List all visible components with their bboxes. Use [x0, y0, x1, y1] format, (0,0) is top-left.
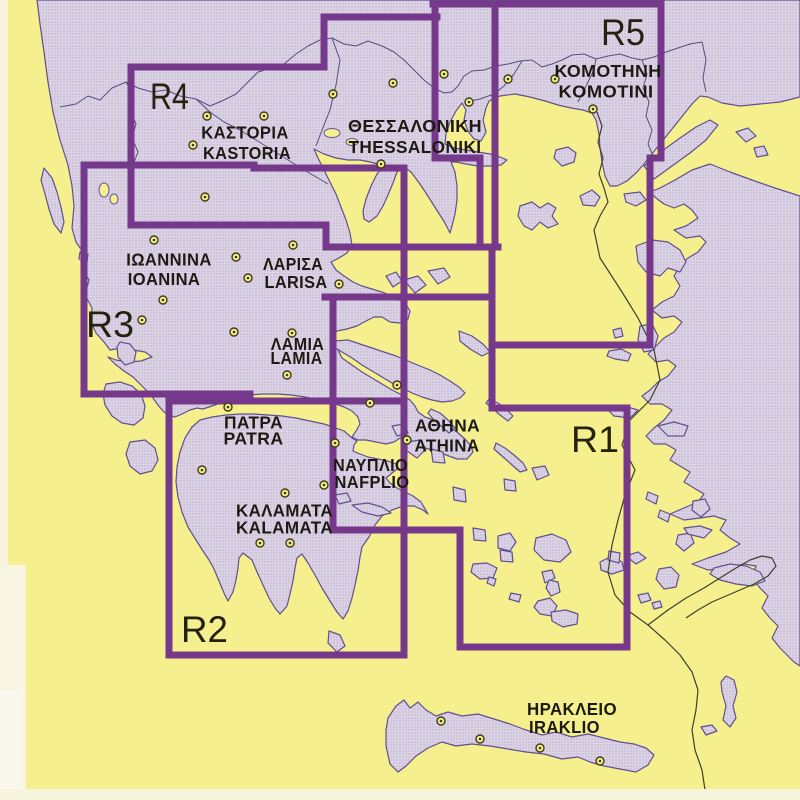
svg-text:IRAKLIO: IRAKLIO	[529, 717, 600, 737]
svg-text:LAMIA: LAMIA	[271, 348, 323, 368]
svg-text:PATRA: PATRA	[224, 429, 284, 449]
svg-text:R3: R3	[86, 304, 134, 345]
svg-text:IOANINA: IOANINA	[128, 269, 201, 289]
svg-text:KALAMATA: KALAMATA	[236, 518, 333, 538]
svg-text:R2: R2	[181, 609, 228, 650]
svg-text:ΙΩΑΝΝΙΝΑ: ΙΩΑΝΝΙΝΑ	[126, 250, 212, 270]
svg-text:NAFPLIO: NAFPLIO	[335, 472, 410, 492]
svg-text:ΚΟΜΟΤΗΝΗ: ΚΟΜΟΤΗΝΗ	[555, 61, 662, 81]
svg-text:ΛΑΡΙΣΑ: ΛΑΡΙΣΑ	[263, 254, 323, 274]
svg-text:R5: R5	[601, 12, 645, 53]
svg-text:LARISA: LARISA	[265, 272, 328, 292]
svg-text:KASTORIA: KASTORIA	[203, 143, 291, 163]
svg-text:R4: R4	[150, 76, 189, 117]
svg-text:R1: R1	[571, 419, 619, 460]
svg-text:ΑΘΗΝΑ: ΑΘΗΝΑ	[415, 416, 480, 436]
svg-text:ATHINA: ATHINA	[415, 436, 480, 456]
svg-text:KOMOTINI: KOMOTINI	[559, 82, 654, 102]
svg-text:ΗΡΑΚΛΕΙΟ: ΗΡΑΚΛΕΙΟ	[527, 699, 617, 719]
svg-text:THESSALONIKI: THESSALONIKI	[349, 137, 482, 157]
svg-text:ΘΕΣΣΑΛΟΝΙΚΗ: ΘΕΣΣΑΛΟΝΙΚΗ	[348, 116, 482, 136]
svg-text:ΚΑΣΤΟΡΙΑ: ΚΑΣΤΟΡΙΑ	[201, 123, 289, 143]
